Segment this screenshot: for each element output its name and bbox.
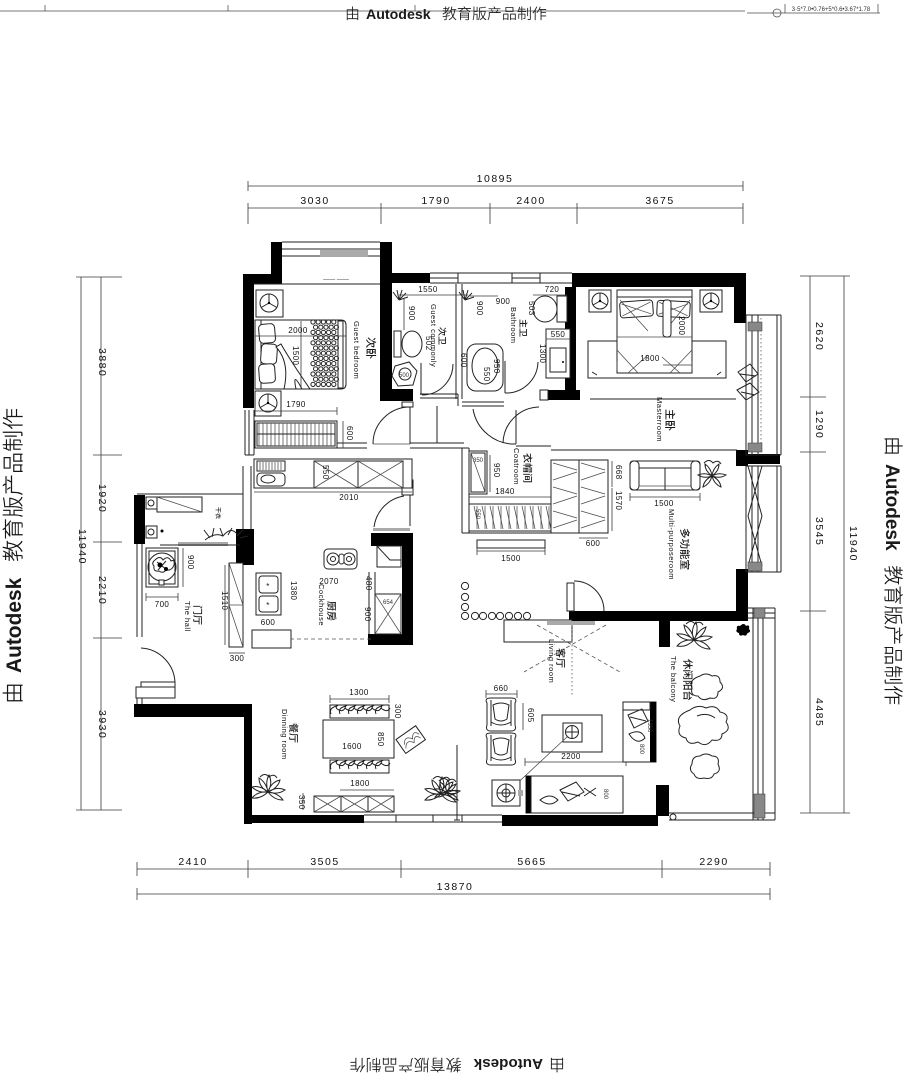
svg-text:550: 550 (551, 330, 566, 339)
svg-text:654: 654 (383, 600, 394, 606)
svg-text:1380: 1380 (289, 581, 298, 601)
svg-text:350: 350 (297, 795, 306, 810)
svg-text:Autodesk: Autodesk (366, 7, 431, 23)
svg-text:605: 605 (526, 708, 535, 723)
svg-text:1500: 1500 (654, 499, 674, 508)
svg-text:Multi-purposeroom: Multi-purposeroom (667, 509, 676, 580)
svg-text:950: 950 (492, 463, 501, 478)
svg-text:1840: 1840 (495, 487, 515, 496)
svg-text:13870: 13870 (437, 881, 474, 893)
svg-text:800: 800 (638, 744, 644, 755)
svg-text:11940: 11940 (847, 526, 859, 562)
svg-text:700: 700 (155, 600, 170, 609)
svg-text:3505: 3505 (310, 856, 339, 868)
svg-text:900: 900 (496, 297, 511, 306)
svg-text:1500: 1500 (291, 346, 300, 366)
svg-text:1550: 1550 (418, 285, 438, 294)
svg-text:2200: 2200 (561, 752, 581, 761)
svg-text:2210: 2210 (96, 576, 108, 605)
svg-text:Living room: Living room (547, 639, 556, 683)
svg-text:2290: 2290 (699, 856, 728, 868)
svg-text:2410: 2410 (178, 856, 207, 868)
svg-text:1500: 1500 (501, 554, 521, 563)
svg-text:600: 600 (345, 426, 354, 441)
svg-text:The balcony: The balcony (669, 656, 678, 702)
svg-text:600: 600 (586, 539, 601, 548)
svg-text:3·5*7.0•0.76+5*0.6•3.67*1.78: 3·5*7.0•0.76+5*0.6•3.67*1.78 (792, 7, 871, 13)
svg-text:1350: 1350 (646, 719, 652, 733)
svg-text:1570: 1570 (614, 491, 623, 511)
svg-text:Autodesk: Autodesk (3, 577, 26, 673)
svg-text:Masterroom: Masterroom (655, 397, 664, 442)
svg-text:5665: 5665 (517, 856, 546, 868)
svg-text:850: 850 (376, 732, 385, 747)
svg-text:600: 600 (261, 618, 276, 627)
svg-text:720: 720 (545, 285, 560, 294)
svg-text:Autodesk: Autodesk (473, 1055, 543, 1072)
svg-text:500: 500 (399, 373, 410, 379)
svg-text:10895: 10895 (477, 173, 514, 185)
svg-text:550: 550 (321, 465, 330, 480)
svg-text:503: 503 (527, 301, 536, 316)
svg-text:2000: 2000 (677, 316, 686, 336)
svg-text:1800: 1800 (640, 354, 660, 363)
svg-text:300: 300 (393, 704, 402, 719)
svg-text:900: 900 (363, 607, 372, 622)
svg-text:1510: 1510 (220, 591, 229, 611)
svg-text:2620: 2620 (813, 322, 825, 351)
svg-text:3675: 3675 (645, 195, 674, 207)
svg-text:1300: 1300 (538, 344, 547, 364)
svg-text:Guest bedroom: Guest bedroom (352, 321, 361, 379)
svg-text:*: * (266, 582, 270, 591)
svg-text:Coatroom: Coatroom (512, 448, 521, 485)
svg-text:1920: 1920 (96, 484, 108, 513)
svg-text:3880: 3880 (96, 348, 108, 377)
svg-text:3030: 3030 (300, 195, 329, 207)
svg-text:900: 900 (186, 555, 195, 570)
svg-text:1300: 1300 (349, 688, 369, 697)
svg-text:660: 660 (494, 684, 509, 693)
svg-text:668: 668 (614, 465, 623, 480)
svg-text:*: * (266, 601, 270, 610)
svg-text:950: 950 (492, 359, 501, 374)
svg-text:11940: 11940 (76, 529, 88, 565)
svg-text:1800: 1800 (350, 779, 370, 788)
svg-text:550: 550 (474, 509, 480, 520)
svg-text:Bathroom: Bathroom (509, 307, 518, 344)
svg-text:900: 900 (407, 306, 416, 321)
svg-text:Dinning room: Dinning room (280, 709, 289, 760)
svg-text:2000: 2000 (288, 326, 308, 335)
svg-text:800: 800 (602, 789, 608, 800)
svg-text:1790: 1790 (286, 400, 306, 409)
svg-text:—— ——: —— —— (323, 277, 349, 283)
svg-text:1600: 1600 (342, 742, 362, 751)
svg-text:1290: 1290 (813, 410, 825, 439)
svg-text:550: 550 (482, 367, 491, 382)
svg-text:350: 350 (473, 458, 484, 464)
svg-text:300: 300 (230, 654, 245, 663)
svg-text:2010: 2010 (339, 493, 359, 502)
svg-text:3545: 3545 (813, 517, 825, 546)
svg-text:Autodesk: Autodesk (881, 464, 902, 551)
svg-text:3930: 3930 (96, 710, 108, 739)
svg-text:1790: 1790 (421, 195, 450, 207)
svg-text:2400: 2400 (516, 195, 545, 207)
svg-text:Guest commonly: Guest commonly (429, 304, 438, 367)
svg-text:4485: 4485 (813, 698, 825, 727)
svg-text:900: 900 (475, 301, 484, 316)
svg-text:The hall: The hall (183, 601, 192, 632)
svg-text:Cockhouse: Cockhouse (317, 584, 326, 626)
